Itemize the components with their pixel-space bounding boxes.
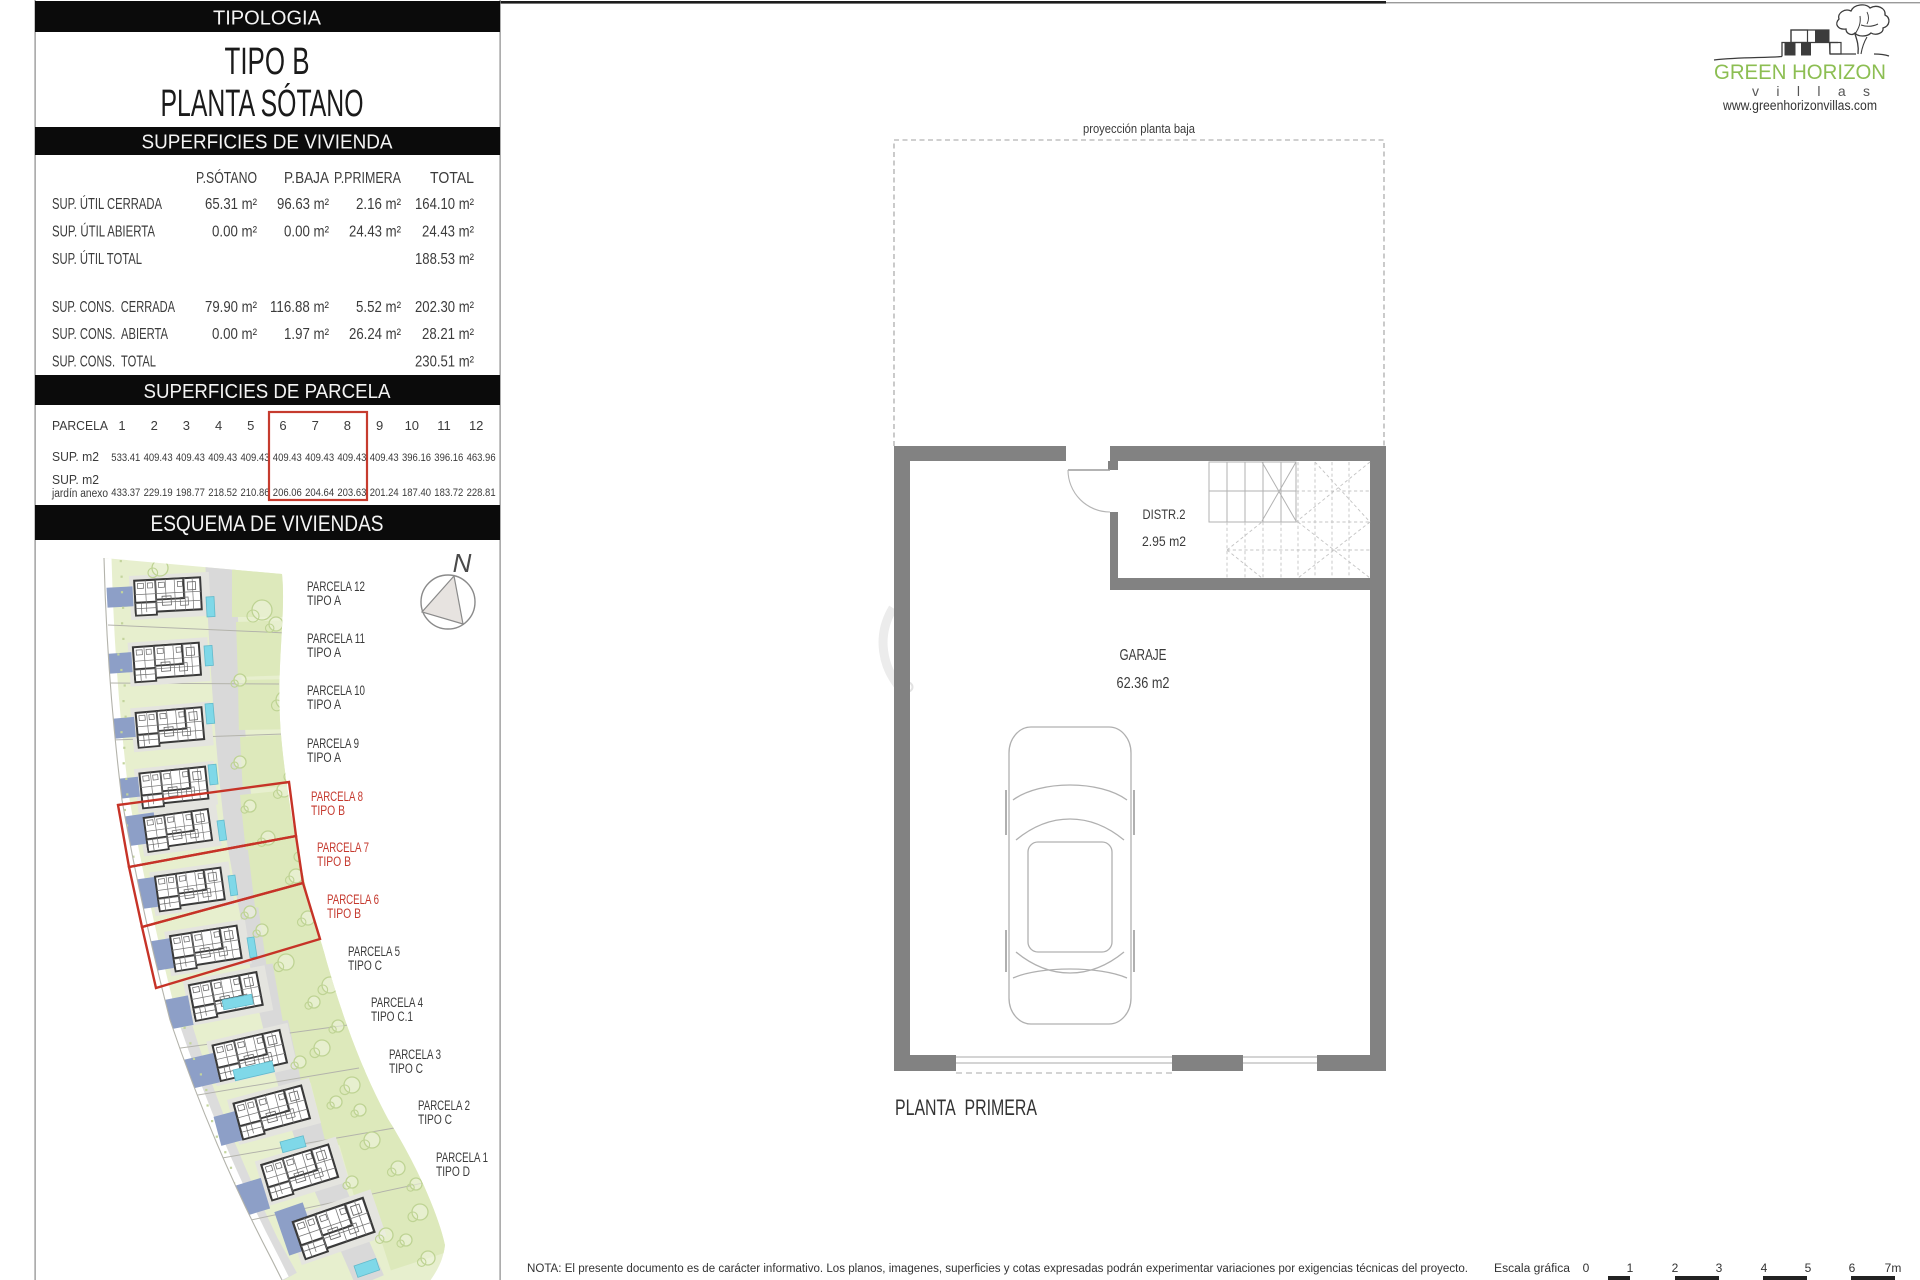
svg-text:8: 8 [344,418,351,433]
svg-text:201.24: 201.24 [370,487,399,499]
svg-text:5.52 m²: 5.52 m² [356,299,401,316]
svg-text:SUP. ÚTIL ABIERTA: SUP. ÚTIL ABIERTA [52,224,155,241]
svg-text:5: 5 [1805,1261,1812,1275]
svg-text:96.63 m²: 96.63 m² [277,196,329,213]
svg-text:0: 0 [1583,1261,1590,1275]
svg-text:26.24 m²: 26.24 m² [349,326,401,343]
svg-text:PARCELA 10: PARCELA 10 [307,683,365,698]
svg-text:164.10 m²: 164.10 m² [415,196,474,213]
svg-text:409.43: 409.43 [241,452,270,464]
svg-text:SUP. m2: SUP. m2 [52,449,99,464]
svg-text:229.19: 229.19 [144,487,173,499]
svg-text:24.43 m²: 24.43 m² [349,224,401,241]
svg-text:PARCELA 5: PARCELA 5 [348,944,400,959]
svg-text:396.16: 396.16 [434,452,463,464]
svg-text:0.00 m²: 0.00 m² [212,326,257,343]
svg-text:SUPERFICIES DE VIVIENDA: SUPERFICIES DE VIVIENDA [142,132,394,154]
svg-text:409.43: 409.43 [208,452,237,464]
svg-text:P.SÓTANO: P.SÓTANO [196,170,257,187]
svg-text:ESQUEMA DE VIVIENDAS: ESQUEMA DE VIVIENDAS [151,511,384,536]
svg-text:183.72: 183.72 [434,487,463,499]
svg-text:TIPO C: TIPO C [418,1112,452,1127]
svg-text:TIPOLOGIA: TIPOLOGIA [213,8,322,30]
svg-text:6: 6 [279,418,286,433]
svg-text:1: 1 [118,418,125,433]
svg-text:proyección planta baja: proyección planta baja [1083,121,1196,136]
svg-text:PARCELA 1: PARCELA 1 [436,1150,488,1165]
svg-text:463.96: 463.96 [467,452,496,464]
svg-text:24.43 m²: 24.43 m² [422,224,474,241]
svg-text:PARCELA 6: PARCELA 6 [327,892,379,907]
svg-text:GARAJE: GARAJE [1120,647,1167,664]
svg-text:P.PRIMERA: P.PRIMERA [334,170,402,187]
svg-text:P.BAJA: P.BAJA [284,170,330,187]
svg-text:116.88 m²: 116.88 m² [270,299,329,316]
svg-text:2: 2 [151,418,158,433]
svg-text:TOTAL: TOTAL [430,170,474,187]
svg-text:11: 11 [437,418,451,433]
svg-text:533.41: 533.41 [111,452,140,464]
svg-text:SUPERFICIES DE PARCELA: SUPERFICIES DE PARCELA [144,381,392,403]
svg-text:1.97 m²: 1.97 m² [284,326,329,343]
svg-text:433.37: 433.37 [111,487,140,499]
svg-text:9: 9 [376,418,383,433]
svg-text:SUP. ÚTIL CERRADA: SUP. ÚTIL CERRADA [52,196,162,213]
svg-text:0.00 m²: 0.00 m² [212,224,257,241]
svg-text:10: 10 [405,418,419,433]
svg-text:SUP. ÚTIL TOTAL: SUP. ÚTIL TOTAL [52,251,142,268]
svg-text:www.greenhorizonvillas.com: www.greenhorizonvillas.com [1722,98,1877,113]
svg-text:NOTA: El presente documento es: NOTA: El presente documento es de caráct… [527,1263,1468,1275]
svg-text:4: 4 [1761,1261,1768,1275]
svg-text:TIPO C: TIPO C [348,958,382,973]
svg-text:409.43: 409.43 [370,452,399,464]
svg-text:218.52: 218.52 [208,487,237,499]
svg-text:TIPO B: TIPO B [327,906,361,921]
svg-text:Escala gráfica: Escala gráfica [1494,1263,1571,1275]
svg-text:PARCELA: PARCELA [52,418,108,433]
svg-text:5: 5 [247,418,254,433]
svg-text:187.40: 187.40 [402,487,431,499]
svg-text:409.43: 409.43 [337,452,366,464]
svg-text:PARCELA 4: PARCELA 4 [371,995,423,1010]
svg-text:jardín anexo: jardín anexo [51,488,108,500]
svg-text:204.64: 204.64 [305,487,334,499]
svg-text:TIPO A: TIPO A [307,697,341,712]
svg-text:PARCELA 12: PARCELA 12 [307,579,365,594]
svg-text:4: 4 [215,418,222,433]
svg-text:62.36 m2: 62.36 m2 [1117,675,1170,692]
svg-text:SUP. CONS. ABIERTA: SUP. CONS. ABIERTA [52,326,168,343]
svg-text:SUP. m2: SUP. m2 [52,472,99,487]
svg-text:PARCELA 3: PARCELA 3 [389,1047,441,1062]
svg-text:TIPO A: TIPO A [307,593,341,608]
svg-text:PARCELA 8: PARCELA 8 [311,789,363,804]
svg-text:TIPO B: TIPO B [225,41,310,83]
svg-text:12: 12 [469,418,483,433]
svg-text:3: 3 [1716,1261,1723,1275]
svg-text:1: 1 [1627,1261,1634,1275]
svg-text:PARCELA 2: PARCELA 2 [418,1098,470,1113]
svg-text:7m: 7m [1885,1261,1902,1275]
svg-text:198.77: 198.77 [176,487,205,499]
svg-text:TIPO B: TIPO B [317,854,351,869]
svg-text:PARCELA 7: PARCELA 7 [317,840,369,855]
svg-text:409.43: 409.43 [144,452,173,464]
svg-text:206.06: 206.06 [273,487,302,499]
svg-text:TIPO B: TIPO B [311,803,345,818]
svg-text:409.43: 409.43 [305,452,334,464]
svg-text:PLANTA SÓTANO: PLANTA SÓTANO [161,82,364,125]
svg-text:DISTR.2: DISTR.2 [1143,506,1186,522]
svg-text:7: 7 [312,418,319,433]
svg-text:188.53 m²: 188.53 m² [415,251,474,268]
svg-text:228.81: 228.81 [467,487,496,499]
svg-text:3: 3 [183,418,190,433]
svg-text:TIPO C.1: TIPO C.1 [371,1009,413,1024]
svg-text:2.95 m2: 2.95 m2 [1142,533,1186,549]
svg-text:202.30 m²: 202.30 m² [415,299,474,316]
svg-text:GREEN HORIZON: GREEN HORIZON [1714,60,1886,84]
svg-text:N: N [453,548,472,578]
svg-text:SUP. CONS. CERRADA: SUP. CONS. CERRADA [52,299,175,316]
svg-text:409.43: 409.43 [176,452,205,464]
svg-text:2.16 m²: 2.16 m² [356,196,401,213]
svg-text:SUP. CONS. TOTAL: SUP. CONS. TOTAL [52,354,156,371]
svg-text:PLANTA PRIMERA: PLANTA PRIMERA [895,1095,1037,1120]
svg-text:210.86: 210.86 [241,487,270,499]
svg-text:PARCELA 9: PARCELA 9 [307,736,359,751]
svg-text:0.00 m²: 0.00 m² [284,224,329,241]
svg-text:230.51 m²: 230.51 m² [415,354,474,371]
svg-text:2: 2 [1672,1261,1679,1275]
svg-text:396.16: 396.16 [402,452,431,464]
svg-text:409.43: 409.43 [273,452,302,464]
svg-text:203.63: 203.63 [337,487,366,499]
svg-text:PARCELA 11: PARCELA 11 [307,631,365,646]
svg-text:TIPO A: TIPO A [307,750,341,765]
svg-text:65.31 m²: 65.31 m² [205,196,257,213]
svg-text:TIPO A: TIPO A [307,645,341,660]
svg-text:28.21 m²: 28.21 m² [422,326,474,343]
svg-text:6: 6 [1849,1261,1856,1275]
svg-text:79.90 m²: 79.90 m² [205,299,257,316]
svg-text:TIPO D: TIPO D [436,1164,470,1179]
svg-text:TIPO C: TIPO C [389,1061,423,1076]
